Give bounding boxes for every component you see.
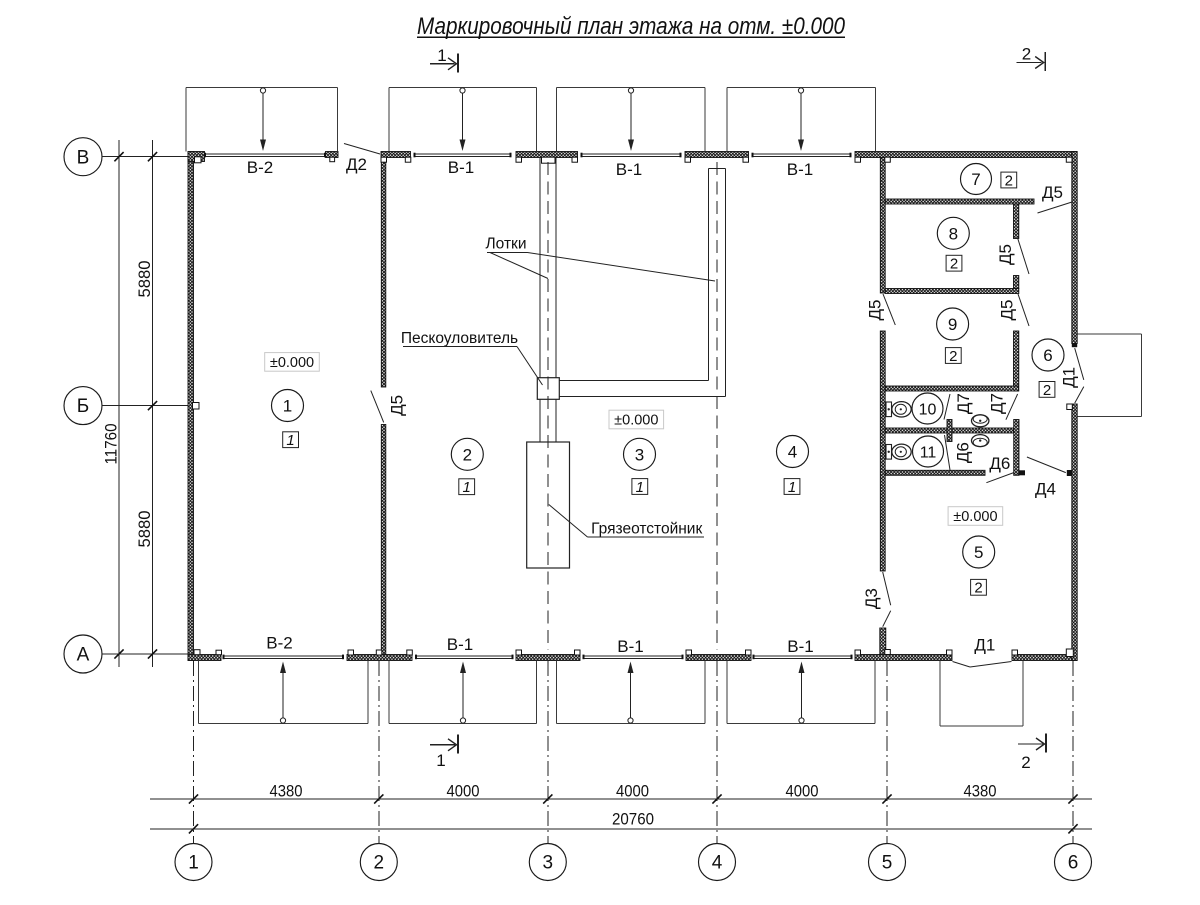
- svg-text:6: 6: [1068, 853, 1079, 874]
- svg-text:В: В: [77, 147, 90, 168]
- svg-text:Д2: Д2: [346, 155, 367, 174]
- svg-text:В-1: В-1: [448, 158, 474, 177]
- svg-text:4: 4: [712, 853, 723, 874]
- svg-text:±0.000: ±0.000: [614, 413, 658, 429]
- svg-text:9: 9: [948, 315, 957, 334]
- svg-text:Маркировочный план этажа на от: Маркировочный план этажа на отм. ±0.000: [417, 13, 845, 40]
- svg-text:1: 1: [788, 479, 796, 496]
- svg-text:1: 1: [437, 46, 446, 65]
- svg-text:В-1: В-1: [447, 635, 473, 654]
- svg-text:2: 2: [974, 580, 982, 597]
- svg-text:2: 2: [374, 853, 385, 874]
- svg-text:А: А: [77, 645, 90, 666]
- svg-text:В-2: В-2: [247, 158, 273, 177]
- svg-text:Пескоуловитель: Пескоуловитель: [401, 330, 518, 347]
- svg-text:5880: 5880: [136, 261, 154, 298]
- svg-text:Д5: Д5: [996, 244, 1015, 265]
- svg-text:±0.000: ±0.000: [270, 355, 314, 371]
- svg-text:1: 1: [463, 479, 471, 496]
- svg-text:4380: 4380: [270, 783, 303, 801]
- svg-text:10: 10: [919, 402, 937, 419]
- svg-text:3: 3: [543, 853, 554, 874]
- svg-text:4000: 4000: [447, 783, 480, 801]
- svg-text:20760: 20760: [612, 811, 654, 829]
- svg-text:Д1: Д1: [974, 636, 995, 655]
- svg-text:Лотки: Лотки: [486, 236, 527, 253]
- svg-text:2: 2: [1022, 45, 1031, 64]
- svg-text:2: 2: [1005, 172, 1013, 189]
- svg-text:Д5: Д5: [998, 300, 1017, 321]
- svg-text:6: 6: [1043, 346, 1052, 365]
- svg-text:1: 1: [188, 853, 199, 874]
- svg-text:4380: 4380: [964, 783, 997, 801]
- svg-text:3: 3: [635, 445, 644, 464]
- svg-text:11: 11: [920, 445, 937, 462]
- svg-text:Д5: Д5: [866, 300, 885, 321]
- svg-text:2: 2: [1021, 753, 1030, 772]
- svg-text:В-1: В-1: [617, 637, 643, 656]
- svg-text:Д6: Д6: [989, 454, 1010, 473]
- svg-text:Д5: Д5: [1042, 183, 1063, 202]
- svg-text:В-1: В-1: [616, 160, 642, 179]
- svg-text:1: 1: [286, 432, 294, 449]
- svg-text:±0.000: ±0.000: [953, 509, 997, 525]
- svg-text:1: 1: [436, 751, 445, 770]
- svg-text:В-2: В-2: [266, 634, 292, 653]
- svg-text:2: 2: [1043, 382, 1051, 399]
- svg-text:5: 5: [882, 853, 893, 874]
- svg-text:Д4: Д4: [1035, 480, 1056, 499]
- svg-text:Д3: Д3: [862, 588, 881, 609]
- svg-text:Д7: Д7: [954, 393, 973, 414]
- svg-text:2: 2: [950, 256, 958, 273]
- svg-text:2: 2: [949, 348, 957, 365]
- svg-text:Д5: Д5: [388, 395, 407, 416]
- svg-text:4000: 4000: [786, 783, 819, 801]
- svg-text:Д1: Д1: [1060, 367, 1079, 388]
- svg-text:Грязеотстойник: Грязеотстойник: [591, 521, 702, 538]
- svg-text:11760: 11760: [103, 424, 121, 465]
- svg-text:В-1: В-1: [787, 637, 813, 656]
- svg-text:1: 1: [283, 397, 292, 416]
- svg-text:5: 5: [974, 543, 983, 562]
- svg-text:Д7: Д7: [988, 393, 1007, 414]
- svg-text:4: 4: [788, 443, 797, 462]
- svg-text:5880: 5880: [136, 511, 154, 548]
- svg-text:1: 1: [636, 479, 644, 496]
- svg-text:7: 7: [971, 170, 980, 189]
- svg-text:4000: 4000: [616, 783, 649, 801]
- svg-text:Д6: Д6: [954, 442, 973, 463]
- svg-text:В-1: В-1: [787, 160, 813, 179]
- svg-text:2: 2: [463, 445, 472, 464]
- svg-text:Б: Б: [77, 396, 89, 417]
- svg-text:8: 8: [949, 224, 958, 243]
